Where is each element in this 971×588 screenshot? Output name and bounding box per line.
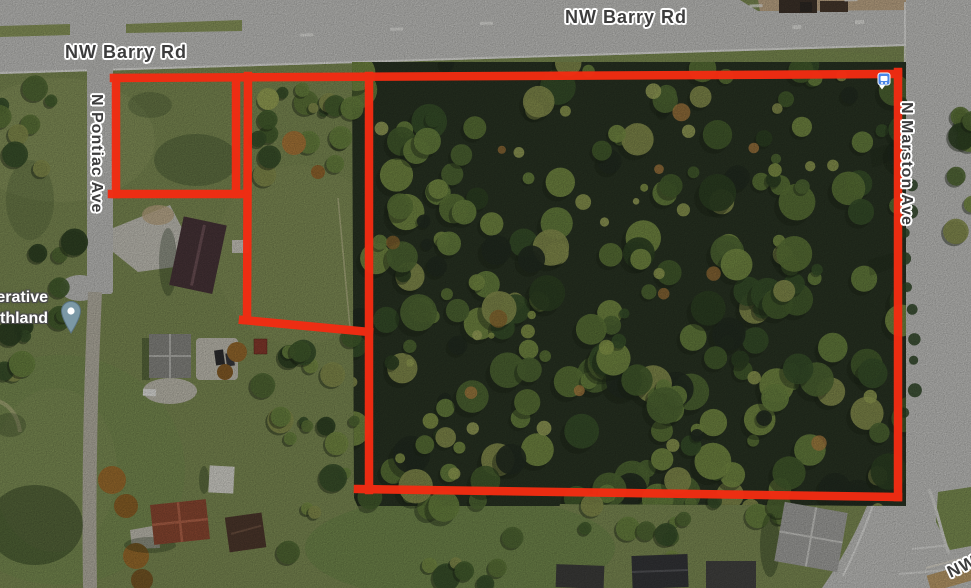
- satellite-map-canvas[interactable]: NW Barry Rd NW Barry Rd N Pontiac Ave N …: [0, 0, 971, 588]
- property-boundary-segment: [114, 74, 898, 78]
- property-boundary-segment: [247, 76, 248, 320]
- satellite-imagery: [0, 0, 971, 588]
